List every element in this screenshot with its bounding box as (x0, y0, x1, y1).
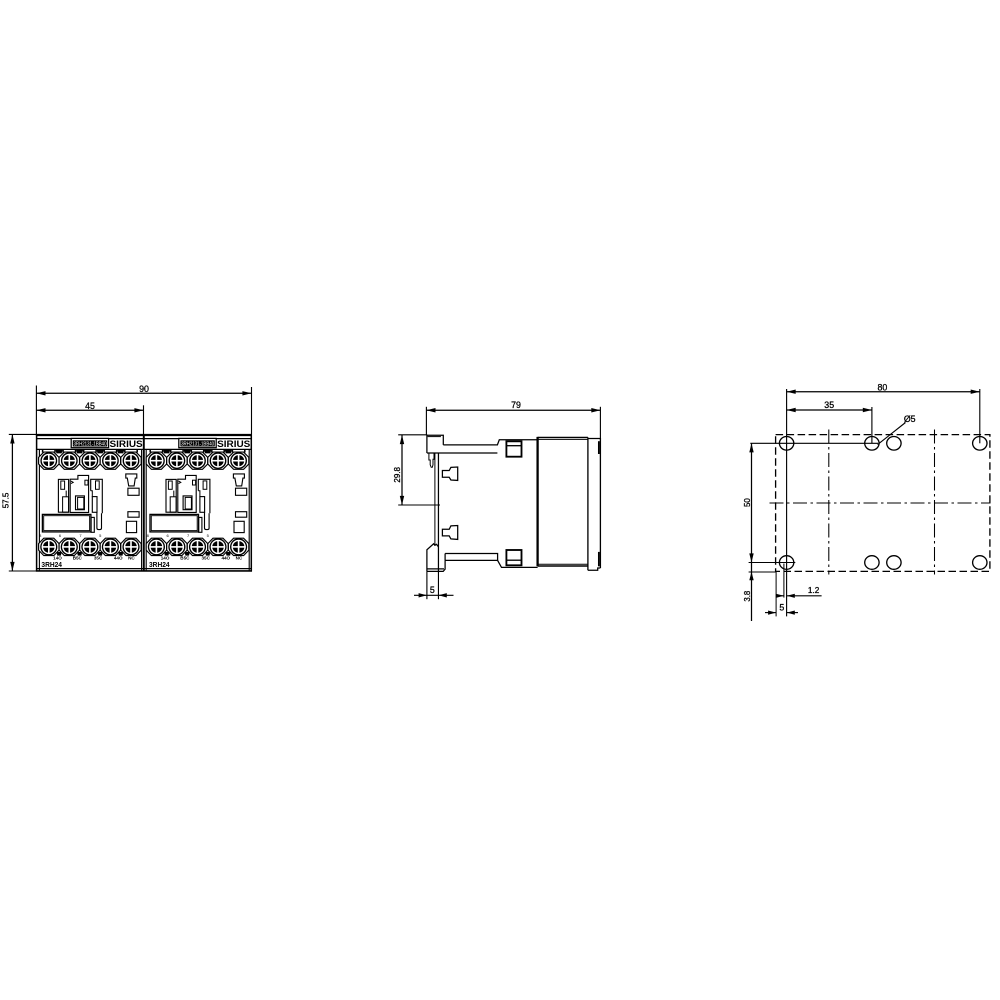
svg-text:79: 79 (511, 400, 521, 410)
svg-text:80: 80 (878, 382, 888, 392)
svg-text:3RH24: 3RH24 (149, 560, 170, 569)
svg-text:3.8: 3.8 (743, 591, 752, 602)
svg-text:29.8: 29.8 (393, 466, 402, 482)
svg-text:NC: NC (236, 555, 243, 560)
svg-text:44O: 44O (221, 555, 230, 560)
svg-text:35C: 35C (201, 555, 210, 560)
svg-text:B5C: B5C (73, 555, 83, 560)
svg-text:1.2: 1.2 (808, 586, 820, 595)
svg-text:57.5: 57.5 (1, 492, 10, 508)
svg-text:3RH24: 3RH24 (41, 560, 62, 569)
svg-text:3RH2131-1BB40: 3RH2131-1BB40 (181, 442, 214, 448)
svg-text:SIRIUS: SIRIUS (110, 439, 144, 450)
svg-text:8: 8 (39, 533, 42, 538)
svg-text:5: 5 (207, 533, 210, 538)
svg-text:7: 7 (79, 533, 82, 538)
svg-text:7: 7 (187, 533, 190, 538)
svg-text:45: 45 (85, 401, 95, 411)
svg-text:90: 90 (139, 384, 149, 394)
svg-text:8: 8 (147, 533, 150, 538)
svg-text:5: 5 (430, 585, 435, 595)
svg-text:6: 6 (166, 533, 169, 538)
svg-text:Ø5: Ø5 (904, 414, 916, 424)
svg-text:35C: 35C (94, 555, 103, 560)
svg-text:SIRIUS: SIRIUS (217, 439, 251, 450)
svg-text:B5C: B5C (180, 555, 190, 560)
svg-text:NC: NC (128, 555, 135, 560)
svg-text:44O: 44O (114, 555, 123, 560)
svg-text:5: 5 (99, 533, 102, 538)
svg-text:3RH2131-1BB40: 3RH2131-1BB40 (74, 442, 107, 448)
svg-text:6: 6 (59, 533, 62, 538)
svg-text:50: 50 (743, 498, 752, 507)
svg-text:35: 35 (824, 400, 834, 410)
svg-text:5: 5 (779, 603, 784, 613)
